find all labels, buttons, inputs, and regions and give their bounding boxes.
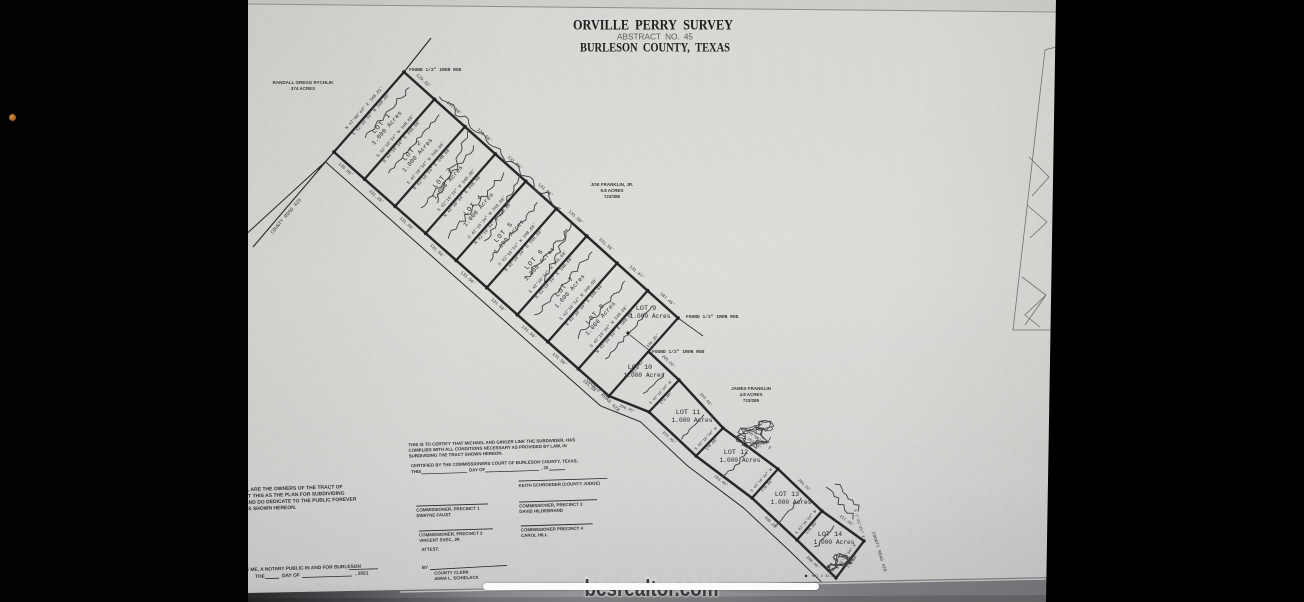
svg-text:9.8 ACRES: 9.8 ACRES (600, 188, 623, 193)
svg-text:, 2021: , 2021 (355, 571, 369, 577)
svg-text:THE: THE (255, 574, 266, 580)
svg-text:DWAYNE FAUST: DWAYNE FAUST (416, 512, 451, 518)
svg-text:FOUND 1/2″ IRON ROD: FOUND 1/2″ IRON ROD (409, 67, 462, 73)
svg-text:COMMISSIONER PRECINCT 4: COMMISSIONER PRECINCT 4 (521, 526, 584, 533)
svg-text:RANDALL GREGG RYCHLIK: RANDALL GREGG RYCHLIK (273, 80, 335, 85)
svg-text:139.96': 139.96' (337, 162, 354, 178)
svg-text:131.58': 131.58' (567, 210, 584, 226)
svg-text:MAT # 34.03: MAT # 34.03 (812, 575, 836, 579)
svg-text:JAMES FRANKLIN: JAMES FRANKLIN (731, 386, 771, 391)
svg-text:131.56': 131.56' (489, 298, 506, 314)
svg-text:CERTIFIED BY THE COMMISSIONERS: CERTIFIED BY THE COMMISSIONERS COURT OF … (411, 458, 578, 468)
svg-text:COUNTY ROAD 428: COUNTY ROAD 428 (585, 377, 621, 413)
svg-text:131.58': 131.58' (536, 183, 553, 199)
svg-text:VINCENT SVEC, JR: VINCENT SVEC, JR (419, 537, 460, 543)
svg-text:FOUND 1/2″ IRON ROD: FOUND 1/2″ IRON ROD (652, 349, 705, 355)
svg-text:206.26': 206.26' (660, 354, 676, 369)
svg-text:COUNTY ROAD 428: COUNTY ROAD 428 (269, 197, 303, 235)
svg-text:THIS: THIS (411, 469, 421, 474)
svg-text:131.56': 131.56' (398, 216, 415, 232)
svg-text:187.45': 187.45' (658, 292, 675, 308)
svg-text:DAY OF: DAY OF (469, 467, 486, 472)
svg-text:131.50': 131.50' (551, 352, 568, 368)
svg-text:E ME, A NOTARY PUBLIC IN AND F: E ME, A NOTARY PUBLIC IN AND FOR BURLESO… (246, 564, 362, 573)
svg-text:BURLESON COUNTY, TEXAS: BURLESON COUNTY, TEXAS (580, 40, 730, 55)
svg-text:131.25': 131.25' (367, 189, 384, 205)
svg-text:211.36': 211.36' (838, 514, 855, 528)
svg-text:BY: BY (422, 565, 428, 570)
svg-text:DAY OF: DAY OF (282, 573, 300, 580)
svg-text:JOE FRANKLIN, JR.: JOE FRANKLIN, JR. (591, 182, 634, 187)
svg-text:131.56': 131.56' (520, 325, 537, 341)
svg-text:, 20: , 20 (541, 465, 549, 470)
svg-text:131.56': 131.56' (428, 243, 445, 259)
svg-text:1.000 Acres: 1.000 Acres (624, 372, 665, 379)
svg-text:723/385: 723/385 (743, 398, 760, 403)
svg-text:131.47': 131.47' (628, 265, 645, 281)
svg-text:CAROL HILL: CAROL HILL (521, 532, 548, 538)
svg-text:ANNA L. SCHIELACK: ANNA L. SCHIELACK (434, 575, 479, 581)
svg-text:131.58': 131.58' (597, 237, 614, 253)
svg-text:723/385: 723/385 (604, 194, 621, 199)
svg-text:1.000 Acres: 1.000 Acres (771, 499, 812, 506)
svg-text:131.58': 131.58' (476, 128, 493, 144)
svg-text:KEITH SCHROEDER (COUNTY JUDGE): KEITH SCHROEDER (COUNTY JUDGE) (518, 481, 600, 488)
svg-text:374 ACRES: 374 ACRES (291, 86, 315, 91)
svg-text:131.56': 131.56' (459, 271, 476, 287)
svg-text:ORVILLE PERRY SURVEY: ORVILLE PERRY SURVEY (573, 18, 733, 34)
svg-text:253.45': 253.45' (698, 392, 713, 408)
svg-text:DAVID HILDEBRAND: DAVID HILDEBRAND (519, 508, 563, 514)
svg-text:LOT 11: LOT 11 (676, 409, 700, 417)
svg-text:LOT 9: LOT 9 (636, 305, 656, 313)
svg-text:1.000 Acres: 1.000 Acres (630, 313, 671, 320)
svg-text:LOT 10: LOT 10 (628, 364, 652, 372)
svg-text:4.8 ACRES: 4.8 ACRES (739, 392, 762, 397)
svg-text:TS SHOWN HEREON.: TS SHOWN HEREON. (245, 505, 297, 513)
svg-text:1.000 Acres: 1.000 Acres (672, 417, 713, 424)
svg-text:129.32': 129.32' (415, 73, 432, 89)
svg-text:COUNTY ROAD 428: COUNTY ROAD 428 (870, 531, 888, 573)
svg-text:LOT 13: LOT 13 (775, 491, 799, 499)
svg-text:FOUND 1/2″ IRON ROD: FOUND 1/2″ IRON ROD (686, 314, 739, 320)
svg-text:ATTEST:: ATTEST: (421, 546, 439, 552)
